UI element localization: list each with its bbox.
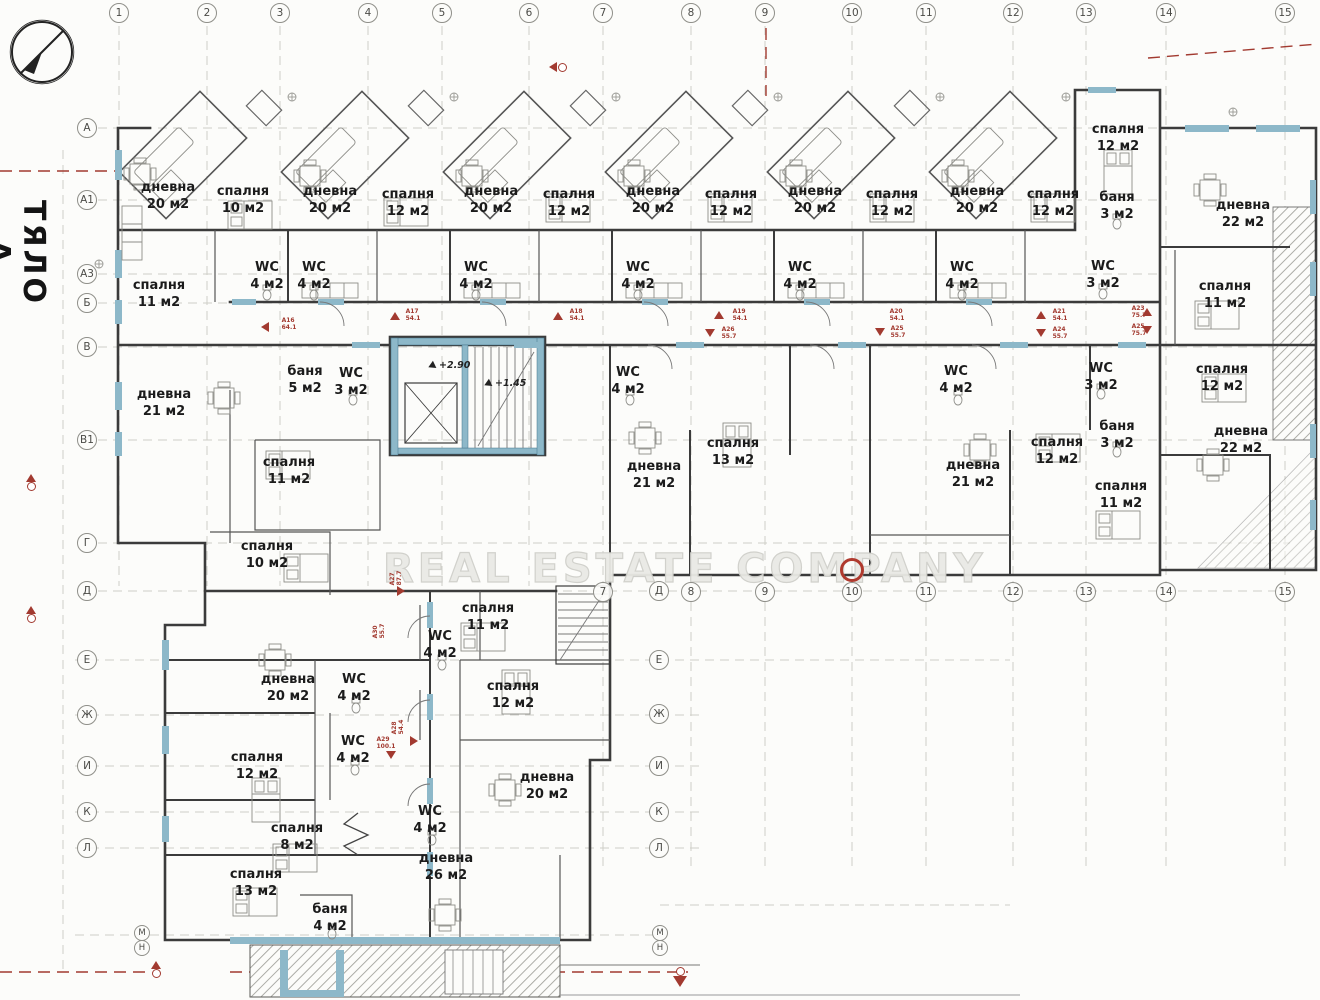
label-text: дневна <box>946 458 1000 473</box>
room-label: спалня12 м2 <box>1196 362 1248 396</box>
room-label: спалня12 м2 <box>1092 122 1144 156</box>
grid-column-bubble: 1 <box>109 3 129 23</box>
room-label: WC4 м2 <box>423 629 456 663</box>
marker-triangle-right <box>397 586 405 596</box>
level-mark: +1.45 <box>486 378 526 389</box>
apartment-marker: A1954.1 <box>733 309 748 323</box>
room-label: дневна20 м2 <box>520 770 574 804</box>
label-text: 20 м2 <box>464 201 518 218</box>
room-label: WC4 м2 <box>459 260 492 294</box>
body-title: ТЯЛО А <box>17 193 51 313</box>
grid-row-bubble-mid: И <box>649 756 669 776</box>
section-triangle-icon <box>26 474 36 482</box>
grid-column-bubble: 7 <box>593 3 613 23</box>
floorplan-canvas: ТЯЛО А REAL ESTATE COMPANY const data = … <box>0 0 1320 1000</box>
grid-row-bubble-small: Н <box>652 940 668 956</box>
marker-triangle-up <box>1036 311 1046 319</box>
room-label: WC3 м2 <box>334 366 367 400</box>
grid-row-bubble-mid: Е <box>649 650 669 670</box>
grid-column-bubble-mid: 13 <box>1076 582 1096 602</box>
label-text: 55.7 <box>891 333 906 340</box>
label-text: WC <box>1091 259 1115 274</box>
label-text: баня <box>312 902 347 917</box>
label-text: 12 м2 <box>543 204 595 221</box>
grid-column-bubble-mid: 7 <box>593 582 613 602</box>
label-text: дневна <box>261 672 315 687</box>
room-label: спалня12 м2 <box>1031 435 1083 469</box>
label-text: 4 м2 <box>336 751 369 768</box>
room-label: спалня12 м2 <box>231 750 283 784</box>
label-text: 55.7 <box>380 624 387 639</box>
label-text: 20 м2 <box>261 689 315 706</box>
level-flag-icon <box>484 378 494 389</box>
label-text: спалня <box>382 187 434 202</box>
label-text: WC <box>255 260 279 275</box>
room-label: спалня8 м2 <box>271 821 323 855</box>
label-text: спалня <box>1027 187 1079 202</box>
label-text: баня <box>1099 190 1134 205</box>
label-text: 4 м2 <box>413 821 446 838</box>
apartment-marker: A2154.1 <box>1053 309 1068 323</box>
marker-triangle-left <box>261 322 269 332</box>
label-text: 21 м2 <box>627 476 681 493</box>
room-label: дневна22 м2 <box>1216 198 1270 232</box>
section-circle-icon <box>152 969 161 978</box>
room-label: дневна26 м2 <box>419 851 473 885</box>
label-text: 4 м2 <box>945 277 978 294</box>
label-text: WC <box>418 804 442 819</box>
label-text: 3 м2 <box>334 383 367 400</box>
label-text: 54.1 <box>733 316 748 323</box>
room-label: баня5 м2 <box>287 364 322 398</box>
room-label: спалня12 м2 <box>705 187 757 221</box>
room-label: WC4 м2 <box>621 260 654 294</box>
label-text: дневна <box>626 184 680 199</box>
label-text: спалня <box>241 539 293 554</box>
section-triangle-icon <box>151 961 161 969</box>
room-label: спалня10 м2 <box>241 539 293 573</box>
section-circle-icon <box>558 63 567 72</box>
label-text: 22 м2 <box>1216 215 1270 232</box>
room-label: WC4 м2 <box>945 260 978 294</box>
room-label: спалня11 м2 <box>1095 479 1147 513</box>
label-text: 4 м2 <box>621 277 654 294</box>
apartment-marker: A1754.1 <box>406 309 421 323</box>
marker-triangle-up <box>553 312 563 320</box>
label-text: 87.7 <box>397 571 404 586</box>
room-label: дневна20 м2 <box>950 184 1004 218</box>
room-label: WC3 м2 <box>1086 259 1119 293</box>
grid-row-bubble-mid: Л <box>649 838 669 858</box>
label-text: спалня <box>1196 362 1248 377</box>
label-text: 55.7 <box>1053 334 1068 341</box>
label-text: дневна <box>137 387 191 402</box>
label-text: 4 м2 <box>459 277 492 294</box>
apartment-marker: A1664.1 <box>282 318 297 332</box>
label-text: 4 м2 <box>611 382 644 399</box>
label-text: дневна <box>141 180 195 195</box>
room-label: WC4 м2 <box>336 734 369 768</box>
label-text: 4 м2 <box>337 689 370 706</box>
marker-triangle-up <box>714 311 724 319</box>
label-text: 21 м2 <box>946 475 1000 492</box>
room-label: баня4 м2 <box>312 902 347 936</box>
label-text: спалня <box>543 187 595 202</box>
room-label: WC4 м2 <box>611 365 644 399</box>
marker-triangle-right <box>410 736 418 746</box>
marker-triangle-down <box>1036 329 1046 337</box>
room-label: спалня12 м2 <box>543 187 595 221</box>
marker-triangle-up <box>1142 308 1152 316</box>
level-flag-icon <box>428 360 438 371</box>
room-label: спалня11 м2 <box>263 455 315 489</box>
grid-row-bubble: К <box>77 802 97 822</box>
label-text: 54.1 <box>890 316 905 323</box>
apartment-marker: A2555.7 <box>891 326 906 340</box>
room-label: спалня11 м2 <box>133 278 185 312</box>
room-label: дневна20 м2 <box>626 184 680 218</box>
label-text: 12 м2 <box>866 204 918 221</box>
label-text: 10 м2 <box>241 556 293 573</box>
grid-column-bubble-mid: 11 <box>916 582 936 602</box>
grid-column-bubble-mid: 9 <box>755 582 775 602</box>
apartment-marker: A2054.1 <box>890 309 905 323</box>
label-text: дневна <box>627 459 681 474</box>
label-text: спалня <box>133 278 185 293</box>
section-marker-house <box>26 474 36 491</box>
room-label: дневна22 м2 <box>1214 424 1268 458</box>
label-text: 5 м2 <box>287 381 322 398</box>
label-text: 12 м2 <box>1031 452 1083 469</box>
grid-column-bubble-mid: 10 <box>842 582 862 602</box>
grid-row-bubble-mid: Д <box>649 581 669 601</box>
grid-row-bubble: Е <box>77 650 97 670</box>
room-label: спалня12 м2 <box>382 187 434 221</box>
label-text: дневна <box>950 184 1004 199</box>
label-text: 22 м2 <box>1214 441 1268 458</box>
room-label: WC4 м2 <box>250 260 283 294</box>
grid-row-bubble: В <box>77 337 97 357</box>
label-text: 20 м2 <box>520 787 574 804</box>
section-circle-icon <box>27 482 36 491</box>
label-text: 13 м2 <box>230 884 282 901</box>
label-text: 11 м2 <box>263 472 315 489</box>
label-text: баня <box>287 364 322 379</box>
grid-column-bubble: 3 <box>270 3 290 23</box>
grid-row-bubble: Д <box>77 581 97 601</box>
grid-column-bubble: 5 <box>432 3 452 23</box>
room-label: баня3 м2 <box>1099 190 1134 224</box>
marker-triangle-down <box>1142 326 1152 334</box>
grid-column-bubble: 13 <box>1076 3 1096 23</box>
grid-row-bubble-mid: Ж <box>649 704 669 724</box>
label-text: 4 м2 <box>297 277 330 294</box>
label-text: 20 м2 <box>950 201 1004 218</box>
grid-row-bubble: В1 <box>77 430 97 450</box>
grid-column-bubble-mid: 14 <box>1156 582 1176 602</box>
grid-row-bubble: А3 <box>77 264 97 284</box>
label-text: 11 м2 <box>462 618 514 635</box>
label-text: спалня <box>1092 122 1144 137</box>
label-text: 4 м2 <box>423 646 456 663</box>
label-text: 4 м2 <box>312 919 347 936</box>
room-label: спалня13 м2 <box>230 867 282 901</box>
label-text: спалня <box>271 821 323 836</box>
apartment-marker: A3055.7 <box>373 624 387 639</box>
label-text: 20 м2 <box>303 201 357 218</box>
label-text: спалня <box>231 750 283 765</box>
label-text: 26 м2 <box>419 868 473 885</box>
room-label: дневна20 м2 <box>141 180 195 214</box>
label-text: WC <box>428 629 452 644</box>
label-text: 54.1 <box>1053 316 1068 323</box>
apartment-marker: A2854.4 <box>392 720 406 735</box>
room-label: WC3 м2 <box>1084 361 1117 395</box>
room-label: спалня11 м2 <box>462 601 514 635</box>
label-text: WC <box>341 734 365 749</box>
label-text: WC <box>1089 361 1113 376</box>
section-marker-house <box>151 961 161 978</box>
grid-column-bubble-mid: 8 <box>681 582 701 602</box>
label-text: 20 м2 <box>626 201 680 218</box>
label-text: 21 м2 <box>137 404 191 421</box>
label-text: дневна <box>1216 198 1270 213</box>
section-triangle-icon <box>673 976 687 987</box>
room-label: WC4 м2 <box>939 364 972 398</box>
grid-column-bubble: 11 <box>916 3 936 23</box>
apartment-marker: A2655.7 <box>722 327 737 341</box>
label-text: 11 м2 <box>1199 296 1251 313</box>
label-text: спалня <box>487 679 539 694</box>
label-text: WC <box>626 260 650 275</box>
apartment-marker: A2787.7 <box>390 571 404 586</box>
label-text: 12 м2 <box>705 204 757 221</box>
label-text: 3 м2 <box>1099 207 1134 224</box>
room-label: спалня13 м2 <box>707 436 759 470</box>
label-text: 54.4 <box>399 720 406 735</box>
label-text: +2.90 <box>439 360 470 371</box>
level-mark: +2.90 <box>430 360 470 371</box>
section-circle-icon <box>676 967 685 976</box>
section-marker-flag-down <box>673 967 687 987</box>
watermark-ring-logo <box>840 558 864 582</box>
room-label: WC4 м2 <box>783 260 816 294</box>
label-text: 54.1 <box>570 316 585 323</box>
label-text: WC <box>302 260 326 275</box>
label-text: спалня <box>705 187 757 202</box>
grid-column-bubble: 15 <box>1275 3 1295 23</box>
grid-row-bubble: Л <box>77 838 97 858</box>
grid-column-bubble: 4 <box>358 3 378 23</box>
label-text: 4 м2 <box>939 381 972 398</box>
room-label: WC4 м2 <box>297 260 330 294</box>
label-text: WC <box>944 364 968 379</box>
grid-column-bubble: 6 <box>519 3 539 23</box>
label-text: WC <box>788 260 812 275</box>
grid-row-bubble: И <box>77 756 97 776</box>
label-text: 12 м2 <box>1092 139 1144 156</box>
apartment-marker: A29100.1 <box>377 737 396 751</box>
apartment-marker: A2455.7 <box>1053 327 1068 341</box>
label-text: 4 м2 <box>783 277 816 294</box>
marker-triangle-down <box>875 328 885 336</box>
label-text: 11 м2 <box>133 295 185 312</box>
label-text: спалня <box>462 601 514 616</box>
section-arrow-icon <box>549 62 557 72</box>
label-text: 12 м2 <box>1196 379 1248 396</box>
room-label: дневна20 м2 <box>261 672 315 706</box>
label-text: 4 м2 <box>250 277 283 294</box>
label-text: 20 м2 <box>141 197 195 214</box>
apartment-marker: A1854.1 <box>570 309 585 323</box>
grid-row-bubble: Ж <box>77 705 97 725</box>
room-label: дневна20 м2 <box>788 184 842 218</box>
grid-column-bubble: 2 <box>197 3 217 23</box>
label-text: дневна <box>520 770 574 785</box>
marker-triangle-up <box>390 312 400 320</box>
label-text: 100.1 <box>377 744 396 751</box>
grid-column-bubble: 8 <box>681 3 701 23</box>
grid-column-bubble: 10 <box>842 3 862 23</box>
room-label: спалня10 м2 <box>217 184 269 218</box>
section-circle-icon <box>27 614 36 623</box>
label-text: WC <box>616 365 640 380</box>
room-label: спалня12 м2 <box>866 187 918 221</box>
section-triangle-icon <box>26 606 36 614</box>
label-text: 12 м2 <box>382 204 434 221</box>
label-text: WC <box>950 260 974 275</box>
room-label: дневна21 м2 <box>137 387 191 421</box>
room-label: спалня11 м2 <box>1199 279 1251 313</box>
grid-row-bubble-mid: К <box>649 802 669 822</box>
grid-row-bubble: А <box>77 118 97 138</box>
label-text: 3 м2 <box>1086 276 1119 293</box>
label-text: 3 м2 <box>1099 436 1134 453</box>
grid-column-bubble: 9 <box>755 3 775 23</box>
label-text: дневна <box>303 184 357 199</box>
label-text: 11 м2 <box>1095 496 1147 513</box>
label-text: 10 м2 <box>217 201 269 218</box>
room-label: спалня12 м2 <box>1027 187 1079 221</box>
label-text: WC <box>464 260 488 275</box>
label-text: WC <box>342 672 366 687</box>
label-text: 54.1 <box>406 316 421 323</box>
section-marker-house <box>26 606 36 623</box>
label-text: спалня <box>866 187 918 202</box>
grid-column-bubble-mid: 12 <box>1003 582 1023 602</box>
label-text: дневна <box>419 851 473 866</box>
label-text: спалня <box>1095 479 1147 494</box>
room-label: WC4 м2 <box>413 804 446 838</box>
room-label: дневна21 м2 <box>627 459 681 493</box>
grid-row-bubble: Б <box>77 293 97 313</box>
grid-column-bubble: 14 <box>1156 3 1176 23</box>
label-text: баня <box>1099 419 1134 434</box>
room-label: спалня12 м2 <box>487 679 539 713</box>
label-text: 13 м2 <box>707 453 759 470</box>
label-text: 12 м2 <box>231 767 283 784</box>
label-text: 64.1 <box>282 325 297 332</box>
label-text: 55.7 <box>722 334 737 341</box>
label-text: спалня <box>1031 435 1083 450</box>
label-text: дневна <box>788 184 842 199</box>
label-text: спалня <box>263 455 315 470</box>
grid-row-bubble: А1 <box>77 190 97 210</box>
label-text: спалня <box>1199 279 1251 294</box>
label-text: 20 м2 <box>788 201 842 218</box>
label-text: 3 м2 <box>1084 378 1117 395</box>
room-label: баня3 м2 <box>1099 419 1134 453</box>
label-text: спалня <box>230 867 282 882</box>
grid-row-bubble: Г <box>77 533 97 553</box>
grid-row-bubble-small: Н <box>134 940 150 956</box>
label-text: 8 м2 <box>271 838 323 855</box>
room-label: дневна20 м2 <box>303 184 357 218</box>
label-text: дневна <box>1214 424 1268 439</box>
label-text: дневна <box>464 184 518 199</box>
marker-triangle-down <box>386 751 396 759</box>
room-label: WC4 м2 <box>337 672 370 706</box>
label-text: 12 м2 <box>1027 204 1079 221</box>
room-label: дневна21 м2 <box>946 458 1000 492</box>
label-text: спалня <box>707 436 759 451</box>
label-text: 12 м2 <box>487 696 539 713</box>
label-text: +1.45 <box>495 378 526 389</box>
marker-triangle-down <box>705 329 715 337</box>
grid-row-bubble-small: М <box>134 925 150 941</box>
section-marker-arrow-left <box>549 62 567 72</box>
grid-row-bubble-small: М <box>652 925 668 941</box>
grid-column-bubble: 12 <box>1003 3 1023 23</box>
room-label: дневна20 м2 <box>464 184 518 218</box>
grid-column-bubble-mid: 15 <box>1275 582 1295 602</box>
label-text: спалня <box>217 184 269 199</box>
label-text: WC <box>339 366 363 381</box>
